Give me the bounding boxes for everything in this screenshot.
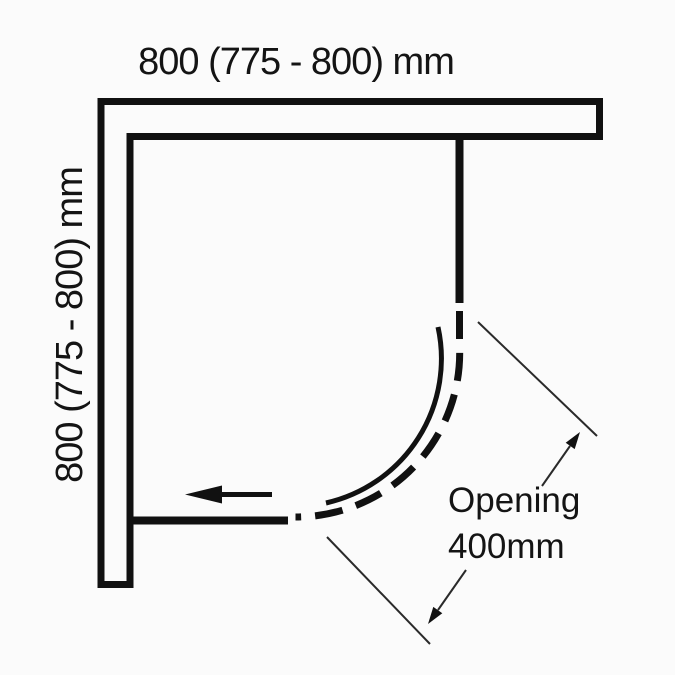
opening-arrow-bottom-shaft xyxy=(438,570,466,610)
sliding-door-arc xyxy=(326,327,441,503)
diagram-linework xyxy=(0,0,675,675)
opening-arrow-bottom-head xyxy=(428,607,442,624)
side-dimension-label: 800 (775 - 800) mm xyxy=(50,167,92,483)
opening-label-line2: 400mm xyxy=(448,527,565,566)
opening-extension-line-bottom xyxy=(327,537,430,644)
opening-label-line1: Opening xyxy=(448,481,580,520)
opening-extension-line-top xyxy=(478,322,597,436)
opening-label: Opening 400mm xyxy=(448,478,580,570)
door-opening-dashed-arc xyxy=(296,311,460,517)
opening-arrow-top-head xyxy=(566,432,580,449)
quadrant-shower-enclosure-diagram: 800 (775 - 800) mm 800 (775 - 800) mm Op… xyxy=(0,0,675,675)
slide-direction-arrow-head xyxy=(185,486,222,504)
top-dimension-label: 800 (775 - 800) mm xyxy=(46,42,546,84)
